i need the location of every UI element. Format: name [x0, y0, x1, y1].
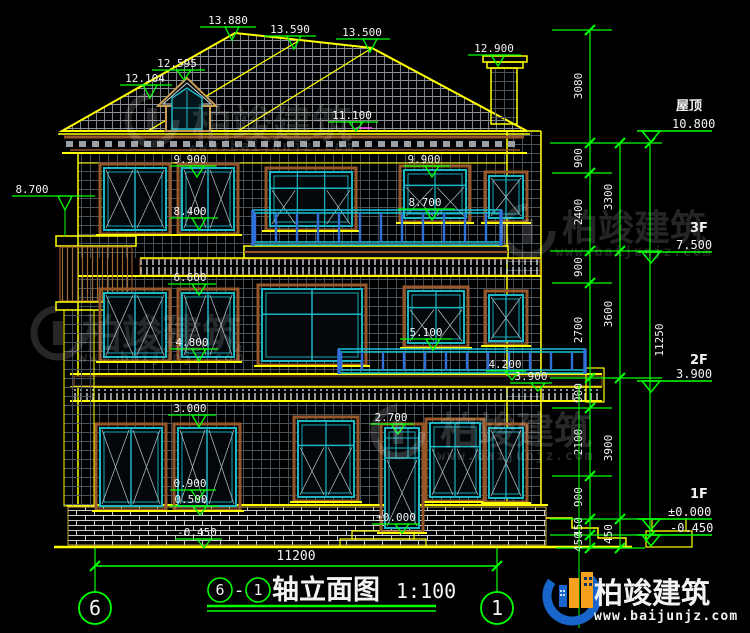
elevation-value: 8.400	[173, 205, 206, 218]
floor-levels: 屋顶10.8003F7.5002F3.9001F±0.000-0.450	[637, 99, 715, 546]
floor-label: 屋顶	[676, 99, 702, 114]
brand-logo: 柏竣建筑www.baijunjz.com	[537, 561, 738, 631]
elevation-value: 0.900	[173, 477, 206, 490]
elevation-value: 12.104	[125, 72, 165, 85]
floor-level-marker: -0.450	[637, 521, 713, 546]
watermark-brand: 柏竣建筑	[562, 208, 706, 249]
floor-label: 2F	[690, 353, 708, 368]
elevation-value: 12.595	[157, 57, 197, 70]
overall-dimension: 11200	[276, 549, 315, 564]
floor-level-marker: 屋顶10.800	[637, 99, 715, 142]
dimension-value: 900	[572, 257, 585, 277]
brand-url: www.baijunjz.com	[594, 609, 738, 624]
drawing-title: 6-1轴立面图1:100	[207, 574, 456, 611]
elevation-value: 3.900	[514, 370, 547, 383]
dim-chain-right: 3080900240090027009002100900450450330036…	[550, 25, 666, 628]
watermark-url: www.baijunjz.com	[437, 449, 594, 464]
dimension-value: 3900	[602, 435, 615, 462]
elevation-value: -0.450	[177, 526, 217, 539]
window	[174, 164, 242, 235]
floor-elevation: 10.800	[672, 117, 715, 131]
brand-name: 柏竣建筑	[594, 576, 710, 610]
elevation-value: 12.900	[474, 42, 514, 55]
elevation-value: 5.100	[409, 326, 442, 339]
elevation-value: 13.880	[208, 14, 248, 27]
dimension-value: 3600	[602, 301, 615, 328]
axis-number: 1	[491, 596, 503, 620]
title-axis-end: 1	[253, 581, 262, 599]
axis-number: 6	[89, 596, 101, 620]
elevation-value: 13.500	[342, 26, 382, 39]
watermark-url: www.baijunjz.com	[189, 139, 356, 155]
window	[481, 291, 531, 346]
elevation-value: 9.900	[407, 153, 440, 166]
elevation-value: 6.600	[173, 271, 206, 284]
floor-level-marker: 2F3.900	[637, 353, 712, 392]
elevation-value: 0.500	[174, 493, 207, 506]
dimension-value: 3080	[572, 73, 585, 100]
watermark-brand: 柏竣建筑	[440, 409, 592, 453]
floor-elevation: 3.900	[676, 367, 712, 381]
title-scale: 1:100	[396, 579, 456, 603]
elevation-value: 13.590	[270, 23, 310, 36]
elevation-value: ±0.000	[376, 511, 416, 524]
axis-bubble-6: 6	[79, 592, 111, 624]
dimension-value: 900	[572, 148, 585, 168]
elevation-value: 3.000	[173, 402, 206, 415]
window	[96, 164, 174, 235]
watermark-url: www.baijunjz.com	[555, 245, 712, 260]
dimension-value: 450	[602, 524, 615, 544]
dimension-value: 11250	[653, 323, 666, 356]
frieze-3f	[78, 258, 541, 276]
title-text: 轴立面图	[272, 574, 380, 606]
window	[290, 417, 362, 502]
dimension-value: 3300	[602, 184, 615, 211]
elevation-drawing: 13.88013.59013.50012.90012.59512.10411.1…	[0, 0, 750, 633]
title-separator: -	[234, 580, 245, 601]
watermark-url: www.baijunjz.com	[79, 350, 246, 366]
floor-elevation: ±0.000	[668, 505, 711, 519]
axis-bubble-1: 1	[481, 592, 513, 624]
cad-canvas: 13.88013.59013.50012.90012.59512.10411.1…	[0, 0, 750, 633]
balcony-slab-3f	[244, 246, 508, 258]
window	[254, 285, 370, 366]
dimension-value: 2700	[572, 317, 585, 344]
window	[92, 424, 170, 511]
floor-label: 1F	[690, 487, 708, 502]
title-axis-start: 6	[215, 581, 224, 599]
floor-elevation: -0.450	[670, 521, 713, 535]
elevation-value: 8.700	[15, 183, 48, 196]
elevation-value: 8.700	[408, 196, 441, 209]
